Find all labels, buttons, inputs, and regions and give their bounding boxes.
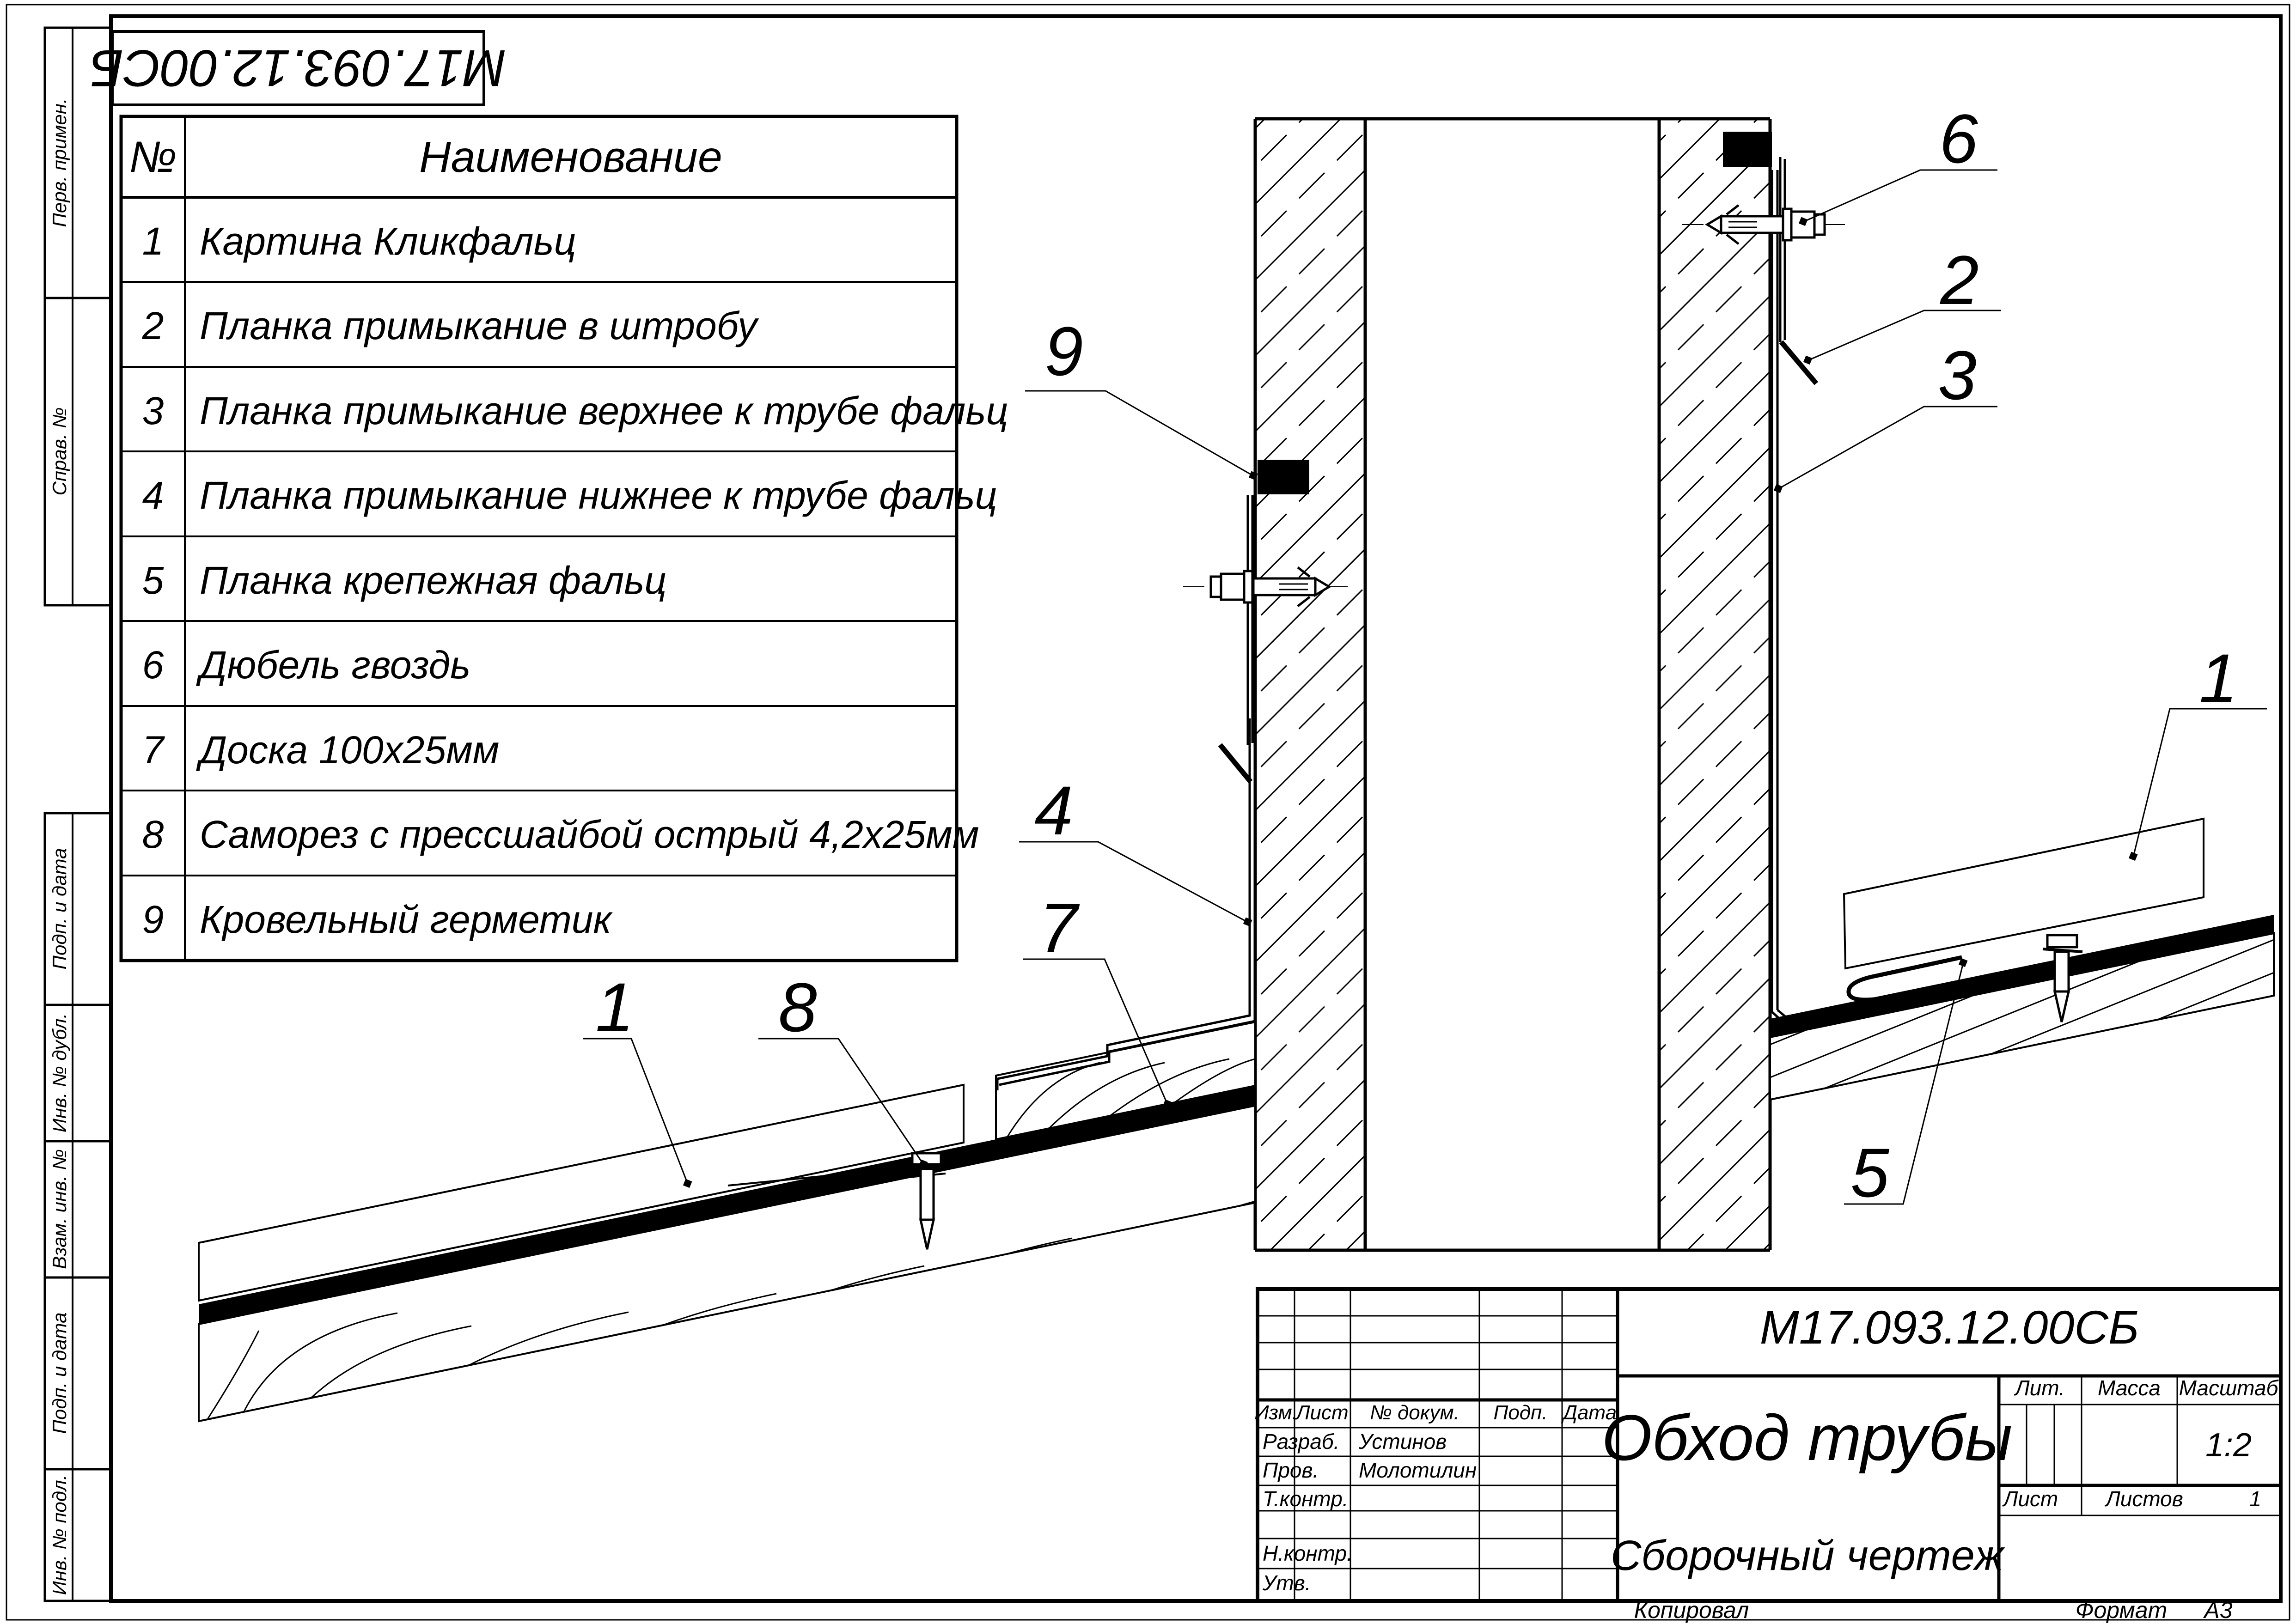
callout-label: 1 (595, 968, 634, 1046)
table-row: 3 Планка примыкание верхнее к трубе фаль… (142, 389, 1008, 432)
row-num: 1 (142, 219, 164, 263)
list-label: Лист (2002, 1487, 2058, 1511)
callout-6: 6 (1799, 100, 1997, 226)
callout-label: 4 (1034, 772, 1073, 849)
table-header-name: Наименование (419, 133, 722, 182)
table-row: 1 Картина Кликфальц (142, 219, 576, 263)
doc-subtitle: Сборочный чертеж (1611, 1532, 2005, 1579)
massa-label: Масса (2098, 1376, 2161, 1400)
row-num: 5 (142, 559, 164, 602)
row-name: Дюбель гвоздь (196, 643, 470, 687)
row-name: Картина Кликфальц (200, 219, 576, 263)
role-utv: Утв. (1262, 1571, 1311, 1595)
listov-value: 1 (2249, 1487, 2261, 1511)
col-podp: Подп. (1493, 1401, 1547, 1424)
role-prov: Пров. (1263, 1458, 1319, 1482)
title-block: Изм. Лист № докум. Подп. Дата Разраб. Ус… (1254, 1289, 2281, 1601)
row-name: Доска 100х25мм (196, 728, 499, 772)
row-num: 9 (142, 898, 164, 941)
table-row: 9 Кровельный герметик (142, 898, 613, 941)
main-drawing: 9 6 2 3 1 (199, 100, 2274, 1421)
callout-9: 9 (1025, 312, 1258, 480)
row-name: Планка примыкание в штробу (200, 304, 759, 347)
row-num: 8 (142, 813, 164, 856)
margin-label: Взам. инв. № (49, 1149, 70, 1269)
margin-box-vzam: Взам. инв. № (45, 1141, 111, 1277)
name-prov: Молотилин (1359, 1458, 1477, 1482)
role-razrab: Разраб. (1263, 1429, 1339, 1454)
doc-number: М17.093.12.00СБ (1760, 1301, 2139, 1354)
row-num: 7 (142, 728, 165, 772)
margin-label: Справ. № (49, 408, 70, 496)
table-row: 5 Планка крепежная фальц (142, 559, 667, 602)
listov-label: Листов (2104, 1487, 2183, 1511)
table-row: 8 Саморез с прессшайбой острый 4,2х25мм (142, 813, 979, 856)
pipe-left-wall (1255, 119, 1365, 1250)
masshtab-label: Масштаб (2179, 1376, 2279, 1400)
margin-box-podp-data-1: Подп. и дата (45, 813, 111, 1005)
callout-label: 8 (778, 968, 817, 1046)
flashing-strip-left (1220, 495, 1252, 782)
stamp-code: М17.093.12.00СБ (90, 39, 506, 97)
callout-label: 9 (1044, 312, 1083, 390)
margin-box-inv-dubl: Инв. № дубл. (45, 1005, 111, 1141)
name-razrab: Устинов (1358, 1429, 1447, 1454)
lit-label: Лит. (2014, 1376, 2065, 1400)
sealant-block-right (1723, 132, 1772, 167)
drawing-sheet: Перв. примен. Справ. № Подп. и дата Инв.… (0, 0, 2296, 1624)
row-name: Саморез с прессшайбой острый 4,2х25мм (200, 813, 979, 856)
row-name: Планка примыкание верхнее к трубе фальц (200, 389, 1008, 432)
margin-box-podp-data-2: Подп. и дата (45, 1277, 111, 1469)
margin-column: Перв. примен. Справ. № Подп. и дата Инв.… (45, 28, 111, 1601)
stamp-box: М17.093.12.00СБ (90, 31, 506, 105)
row-num: 2 (142, 304, 164, 347)
scale-value: 1:2 (2205, 1427, 2252, 1464)
callout-label: 6 (1939, 100, 1978, 177)
sealant-block-left (1258, 460, 1309, 494)
table-row: 2 Планка примыкание в штробу (142, 304, 759, 347)
format-label: Формат (2076, 1597, 2168, 1623)
margin-box-sprav: Справ. № (45, 298, 111, 605)
row-num: 6 (142, 643, 164, 687)
callout-label: 2 (1940, 241, 1978, 319)
drawing-canvas: Перв. примен. Справ. № Подп. и дата Инв.… (0, 0, 2296, 1624)
callout-label: 3 (1938, 336, 1976, 414)
kopiroval-label: Копировал (1634, 1597, 1749, 1623)
row-num: 4 (142, 474, 164, 517)
row-name: Кровельный герметик (200, 898, 613, 941)
callout-label: 7 (1039, 889, 1080, 967)
callout-label: 5 (1850, 1134, 1889, 1211)
pipe-right-wall (1659, 119, 1770, 1250)
format-value: А3 (2203, 1597, 2232, 1623)
margin-label: Перв. примен. (49, 98, 70, 227)
row-name: Планка крепежная фальц (200, 559, 666, 602)
table-header-num: № (129, 133, 177, 182)
margin-label: Подп. и дата (49, 1313, 70, 1434)
role-tkontr: Т.контр. (1263, 1487, 1349, 1511)
callout-label: 1 (2199, 639, 2237, 717)
role-nkontr: Н.контр. (1263, 1541, 1353, 1565)
row-name: Планка примыкание нижнее к трубе фальц (200, 474, 997, 517)
margin-label: Инв. № подл. (49, 1475, 70, 1595)
row-num: 3 (142, 389, 164, 432)
margin-box-inv-podl: Инв. № подл. (45, 1469, 111, 1601)
table-row: 4 Планка примыкание нижнее к трубе фальц (142, 474, 997, 517)
col-list: Лист (1295, 1401, 1348, 1424)
margin-label: Инв. № дубл. (49, 1013, 70, 1132)
table-row: 7 Доска 100х25мм (142, 728, 500, 772)
col-izm: Изм. (1254, 1401, 1298, 1424)
table-row: 6 Дюбель гвоздь (142, 643, 471, 687)
col-dokum: № докум. (1370, 1401, 1459, 1424)
flashing-strip-2 (1780, 157, 1816, 383)
parts-table: № Наименование 1 Картина Кликфальц 2 Пла… (121, 116, 1008, 961)
margin-label: Подп. и дата (49, 848, 70, 970)
doc-title: Обход трубы (1602, 1401, 2013, 1474)
